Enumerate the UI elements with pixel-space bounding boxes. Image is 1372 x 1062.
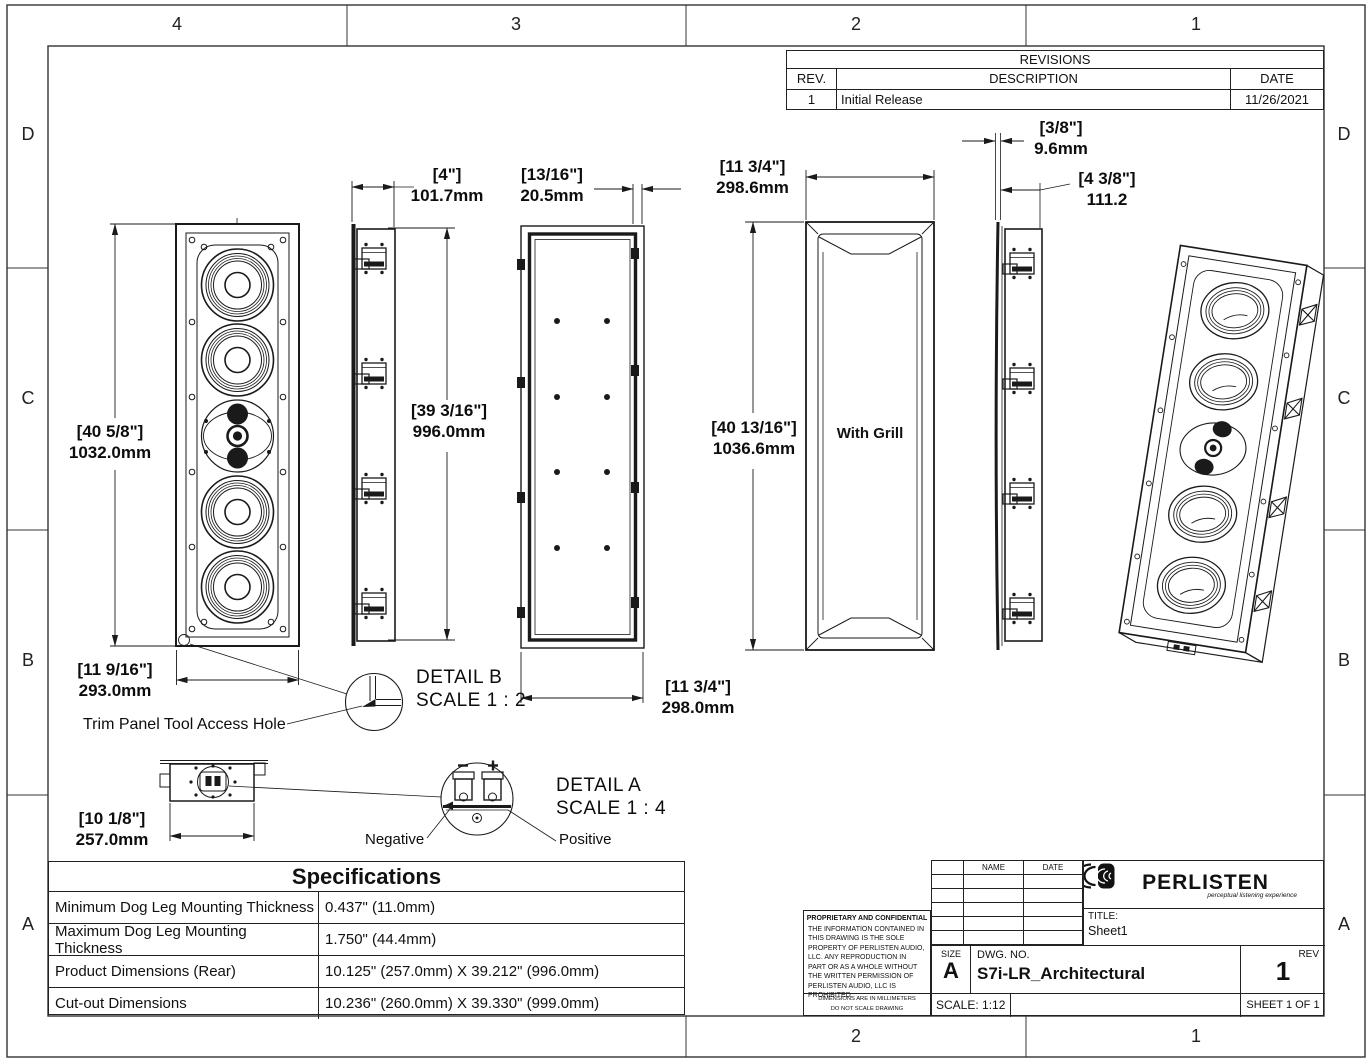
zone-left-b: B <box>12 650 44 671</box>
zone-left-d: D <box>12 124 44 145</box>
dim-grill-width-top: [11 3/4"]298.6mm <box>700 156 805 198</box>
title-box: TITLE: Sheet1 <box>1083 909 1325 945</box>
dim-bottom-width: [10 1/8"]257.0mm <box>64 808 160 850</box>
front-view <box>176 218 299 646</box>
spec-name: Maximum Dog Leg Mounting Thickness <box>49 924 319 955</box>
size-value: A <box>932 959 970 983</box>
spec-row: Maximum Dog Leg Mounting Thickness 1.750… <box>49 924 684 956</box>
name-column-header: NAME <box>964 861 1024 875</box>
dwg-row: SIZE A DWG. NO. S7i-LR_Architectural REV… <box>932 945 1325 993</box>
proprietary-box: PROPRIETARY AND CONFIDENTIAL THE INFORMA… <box>803 910 931 1016</box>
iso-tweeter-array <box>1170 410 1256 488</box>
positive-label: Positive <box>559 831 612 848</box>
spec-value: 0.437" (11.0mm) <box>319 892 684 923</box>
rev-label: REV <box>1298 949 1319 960</box>
spec-value: 10.125" (257.0mm) X 39.212" (996.0mm) <box>319 956 684 987</box>
name-date-grid: NAME DATE <box>932 861 1083 945</box>
dwg-number-box: DWG. NO. S7i-LR_Architectural <box>971 946 1241 993</box>
dim-wall-thickness: [13/16"]20.5mm <box>506 164 598 206</box>
dwg-label: DWG. NO. <box>977 949 1240 961</box>
trim-access-hole <box>179 635 190 646</box>
specifications-table: Specifications Minimum Dog Leg Mounting … <box>48 861 685 1015</box>
dim-rear-width: [11 3/4"]298.0mm <box>650 676 746 718</box>
date-col-header: DATE <box>1231 69 1323 89</box>
dim-depth-with-grill: [4 3/8"]111.2 <box>1064 168 1150 210</box>
title-block: NAME DATE PERLISTEN perceptual listening… <box>931 860 1324 1016</box>
date-column-header: DATE <box>1024 861 1083 875</box>
zone-right-d: D <box>1328 124 1360 145</box>
side-view <box>352 224 396 646</box>
brand-tagline: perceptual listening experience <box>1207 892 1297 899</box>
detail-a-view <box>229 761 556 842</box>
zone-top-3: 3 <box>500 14 532 35</box>
dwg-number: S7i-LR_Architectural <box>977 964 1240 984</box>
drawing-notes: DIMENSIONS ARE IN MILLIMETERS DO NOT SCA… <box>804 993 930 1015</box>
detail-a-label: DETAIL A SCALE 1 : 4 <box>556 774 666 820</box>
spec-row: Cut-out Dimensions 10.236" (260.0mm) X 3… <box>49 988 684 1019</box>
revisions-table: REVISIONS REV. DESCRIPTION DATE 1 Initia… <box>786 50 1324 110</box>
scale-value: SCALE: 1:12 <box>932 994 1011 1017</box>
tweeter-array <box>202 400 274 472</box>
detail-b-label: DETAIL B SCALE 1 : 2 <box>416 666 526 712</box>
isometric-view <box>1118 245 1325 665</box>
side-view-with-grill <box>996 222 1042 650</box>
zone-top-4: 4 <box>161 14 193 35</box>
zone-bottom-2: 2 <box>840 1026 872 1047</box>
negative-label: Negative <box>365 831 424 848</box>
zone-top-2: 2 <box>840 14 872 35</box>
with-grill-label: With Grill <box>806 425 934 442</box>
revisions-header-row: REV. DESCRIPTION DATE <box>787 69 1323 90</box>
spec-row: Product Dimensions (Rear) 10.125" (257.0… <box>49 956 684 988</box>
revision-row: 1 Initial Release 11/26/2021 <box>787 90 1323 110</box>
rev-value: 1 <box>1241 956 1325 987</box>
spec-name: Product Dimensions (Rear) <box>49 956 319 987</box>
spec-name: Cut-out Dimensions <box>49 988 319 1019</box>
zone-left-a: A <box>12 914 44 935</box>
bottom-view <box>160 761 268 802</box>
rev-box: REV 1 <box>1241 946 1325 993</box>
size-box: SIZE A <box>932 946 971 993</box>
dim-front-width: [11 9/16"]293.0mm <box>62 659 168 701</box>
zone-bottom-1: 1 <box>1180 1026 1212 1047</box>
title-label: TITLE: <box>1088 911 1325 922</box>
revision-description: Initial Release <box>837 90 1231 110</box>
spec-name: Minimum Dog Leg Mounting Thickness <box>49 892 319 923</box>
dim-side-height: [39 3/16"]996.0mm <box>402 400 496 442</box>
revision-date: 11/26/2021 <box>1231 90 1323 110</box>
zone-left-c: C <box>12 388 44 409</box>
spec-value: 10.236" (260.0mm) X 39.330" (999.0mm) <box>319 988 684 1019</box>
zone-right-b: B <box>1328 650 1360 671</box>
dim-grill-height: [40 13/16"]1036.6mm <box>700 417 808 459</box>
dim-grill-thickness: [3/8"]9.6mm <box>1018 117 1104 159</box>
rev-col-header: REV. <box>787 69 837 89</box>
dim-front-height: [40 5/8"]1032.0mm <box>58 421 162 463</box>
zone-right-a: A <box>1328 914 1360 935</box>
drawing-sheet: 4 3 2 1 2 1 D C B A D C B A REVISIONS RE… <box>0 0 1372 1062</box>
revision-number: 1 <box>787 90 837 110</box>
proprietary-title: PROPRIETARY AND CONFIDENTIAL <box>806 914 928 924</box>
revisions-title: REVISIONS <box>787 51 1323 69</box>
scale-row: SCALE: 1:12 SHEET 1 OF 1 <box>932 993 1325 1017</box>
description-col-header: DESCRIPTION <box>837 69 1231 89</box>
zone-right-c: C <box>1328 388 1360 409</box>
specifications-title: Specifications <box>49 862 684 892</box>
zone-top-1: 1 <box>1180 14 1212 35</box>
spec-value: 1.750" (44.4mm) <box>319 924 684 955</box>
proprietary-body: THE INFORMATION CONTAINED IN THIS DRAWIN… <box>808 925 926 1001</box>
rear-view <box>517 226 644 648</box>
brand-logo: PERLISTEN perceptual listening experienc… <box>1083 861 1325 909</box>
perlisten-logo-icon <box>1084 861 1116 891</box>
dim-side-depth: [4"]101.7mm <box>404 164 490 206</box>
trim-access-note: Trim Panel Tool Access Hole <box>83 716 286 734</box>
spec-row: Minimum Dog Leg Mounting Thickness 0.437… <box>49 892 684 924</box>
sheet-count: SHEET 1 OF 1 <box>1241 994 1325 1017</box>
title-value: Sheet1 <box>1088 924 1325 938</box>
units-note: DIMENSIONS ARE IN MILLIMETERS <box>804 994 930 1004</box>
no-scale-note: DO NOT SCALE DRAWING <box>804 1004 930 1014</box>
